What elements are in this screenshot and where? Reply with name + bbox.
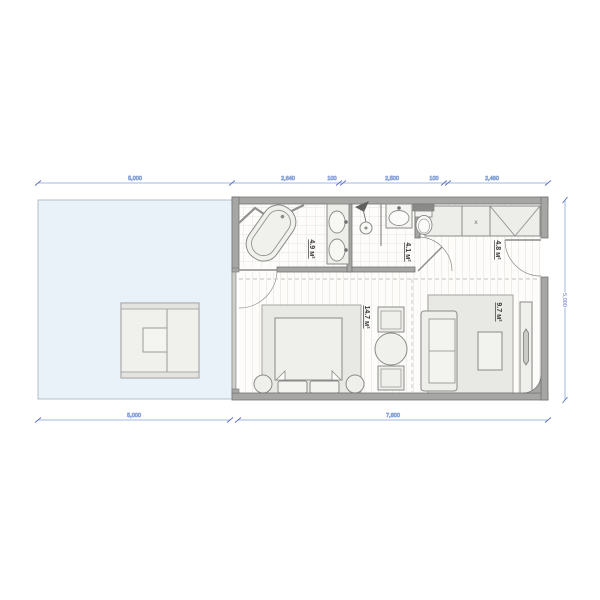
closet-unit-wardrobe (490, 206, 540, 236)
hall-area-label: 4.8 м² (494, 240, 501, 260)
living-area-label: 9.7 м² (495, 302, 502, 322)
wall-wc-bottom (352, 267, 415, 272)
bedroom-furniture (254, 305, 407, 393)
vanity-faucet-bottom (344, 248, 348, 252)
vanity-sink-top (329, 211, 345, 233)
vanity-sink-bottom (329, 239, 345, 261)
chair-bottom (378, 366, 404, 390)
dimension-top: 5,000 2,640 100 2,500 100 2,460 (35, 176, 551, 186)
terrace-structure-top-rail (121, 303, 199, 309)
dining-set (375, 307, 407, 390)
bed-pillow-left (278, 381, 307, 393)
dimension-bottom: 5,000 7,800 (35, 413, 551, 423)
bedroom-area-label: 14.7 м² (363, 305, 370, 329)
terrace-structure (121, 303, 199, 378)
dimension-right: 5,000 (561, 197, 568, 403)
nightstand-left (254, 375, 272, 393)
terrace-structure-inner-box (143, 328, 167, 352)
tv-screen (524, 329, 529, 365)
wc-area-label: 4.1 м² (404, 242, 411, 262)
vanity (327, 204, 349, 264)
wall-right-upper (541, 197, 548, 238)
dim-right-height: 5,000 (561, 293, 567, 307)
dim-top-seg-1: 2,640 (281, 176, 295, 182)
shower-drain-center (365, 227, 368, 230)
dim-top-seg-3: 2,500 (385, 176, 399, 182)
hall-closets: x (425, 206, 540, 236)
wall-bathroom-bottom (277, 267, 352, 272)
vanity-faucet-top (344, 220, 348, 224)
bed-pillow-right (310, 381, 339, 393)
bathroom-area-label: 4.9 м² (308, 239, 315, 259)
dim-top-seg-2: 100 (327, 176, 336, 182)
washbasin-bowl (389, 211, 409, 226)
dim-top-terrace: 5,000 (128, 176, 142, 182)
window-wall (232, 268, 239, 393)
dim-bottom-terrace: 5,000 (127, 413, 141, 419)
wall-bottom (232, 393, 548, 400)
toilet-shelf (413, 204, 434, 211)
floor-plan-drawing: x (0, 0, 600, 600)
wall-right-lower (541, 277, 548, 400)
washbasin (386, 204, 412, 228)
coffee-table (478, 332, 502, 370)
washbasin-faucet (397, 206, 401, 210)
dim-top-seg-5: 2,460 (485, 176, 499, 182)
round-table (375, 333, 407, 365)
window-cap-bottom (232, 389, 239, 393)
nightstand-right (346, 375, 364, 393)
floor-plan-page: x (0, 0, 600, 600)
dim-bottom-plan: 7,800 (386, 413, 400, 419)
wall-top (232, 197, 548, 204)
wall-left-upper (232, 197, 239, 270)
terrace-structure-bottom-rail (121, 372, 199, 378)
terrace (38, 200, 232, 399)
window-cap-top (232, 268, 239, 272)
dim-top-seg-4: 100 (429, 176, 438, 182)
terrace-window (232, 270, 236, 393)
